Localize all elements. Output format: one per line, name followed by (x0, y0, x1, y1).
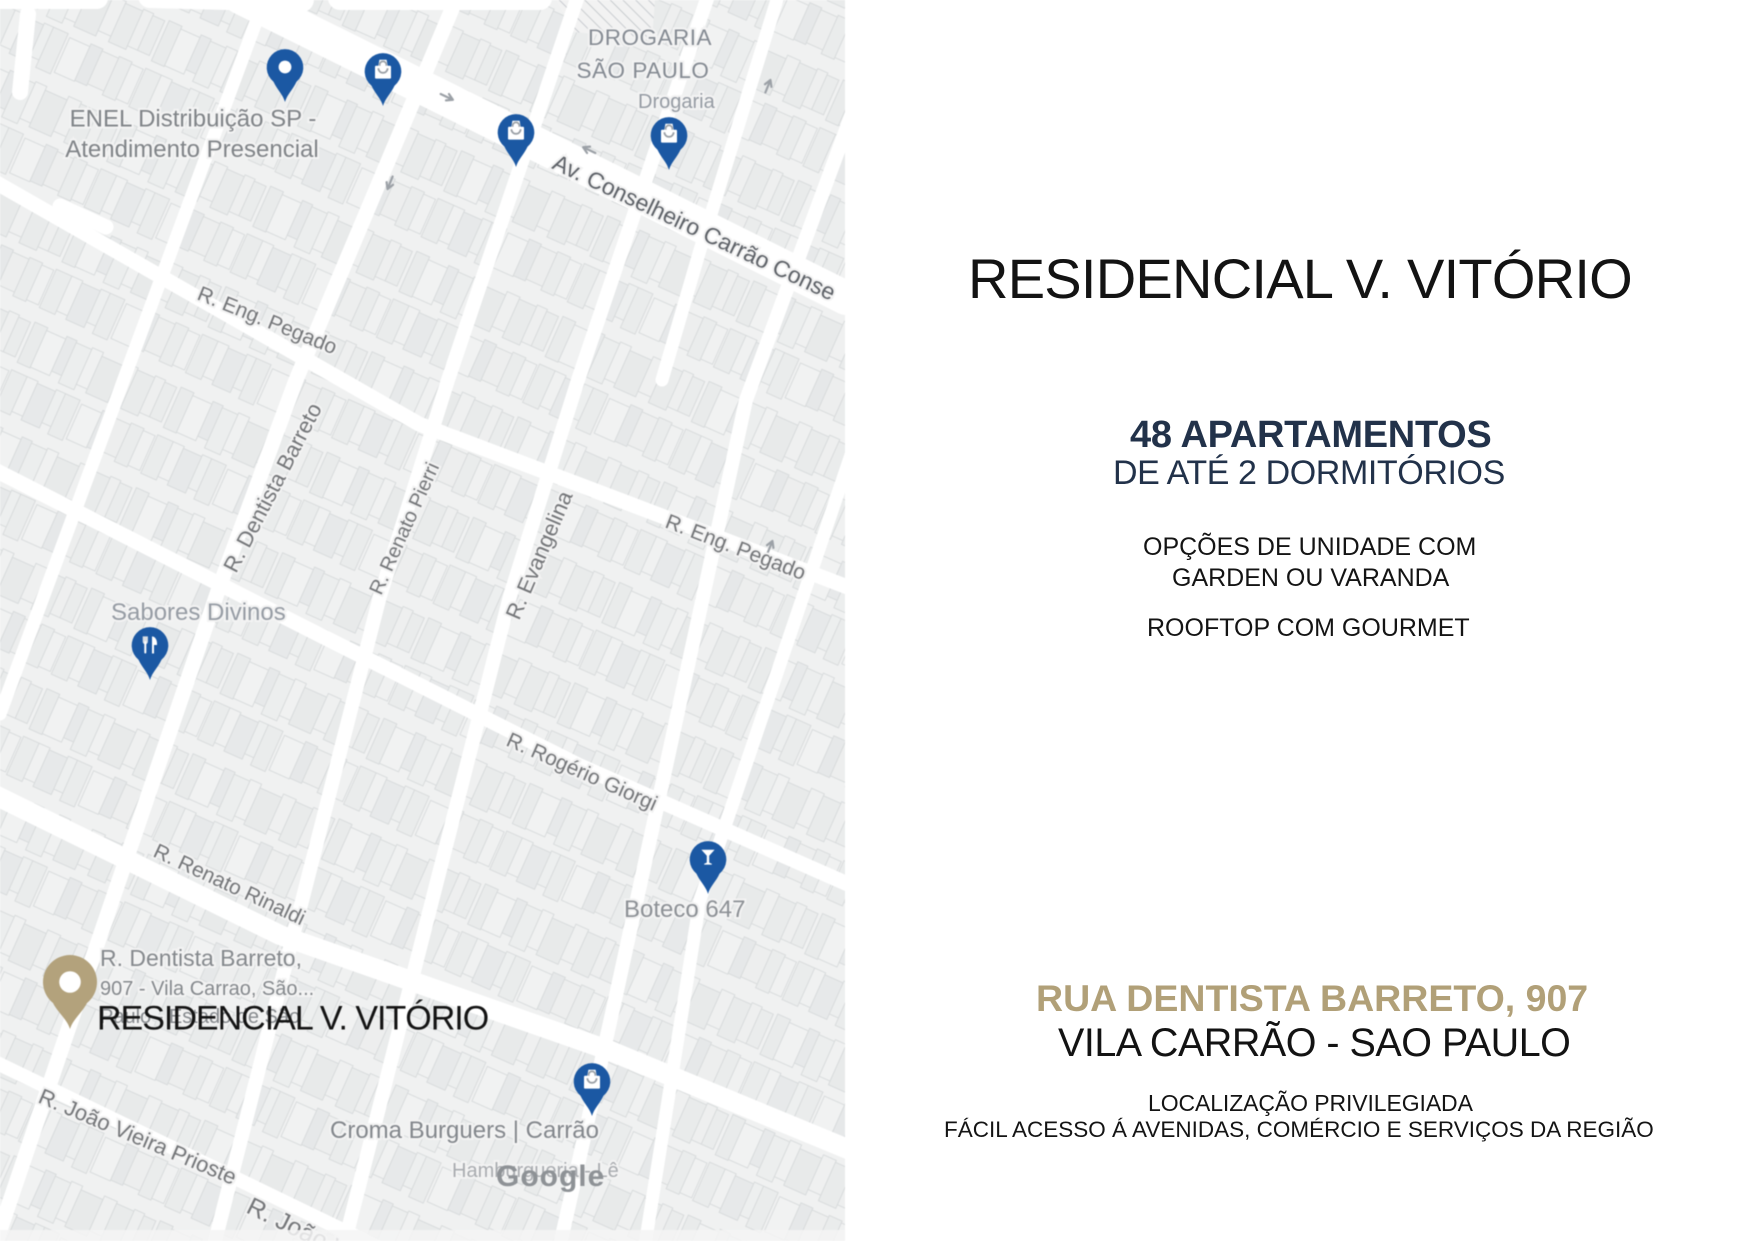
svg-text:ENEL Distribuição SP -: ENEL Distribuição SP - (70, 106, 317, 133)
svg-text:R. Dentista Barreto,: R. Dentista Barreto, (100, 945, 302, 971)
svg-text:Drogaria: Drogaria (638, 91, 716, 113)
svg-text:Atendimento Presencial: Atendimento Presencial (65, 136, 318, 163)
svg-text:DROGARIA: DROGARIA (588, 25, 712, 50)
svg-text:Boteco 647: Boteco 647 (624, 896, 745, 923)
svg-text:SÃO PAULO: SÃO PAULO (577, 58, 710, 83)
svg-text:907 - Vila Carrao, São...: 907 - Vila Carrao, São... (100, 978, 314, 1000)
svg-text:RESIDENCIAL V. VITÓRIO: RESIDENCIAL V. VITÓRIO (97, 999, 488, 1037)
svg-text:Google: Google (496, 1160, 605, 1193)
svg-text:Sabores Divinos: Sabores Divinos (111, 599, 286, 626)
svg-text:Croma Burguers | Carrão: Croma Burguers | Carrão (330, 1117, 599, 1144)
